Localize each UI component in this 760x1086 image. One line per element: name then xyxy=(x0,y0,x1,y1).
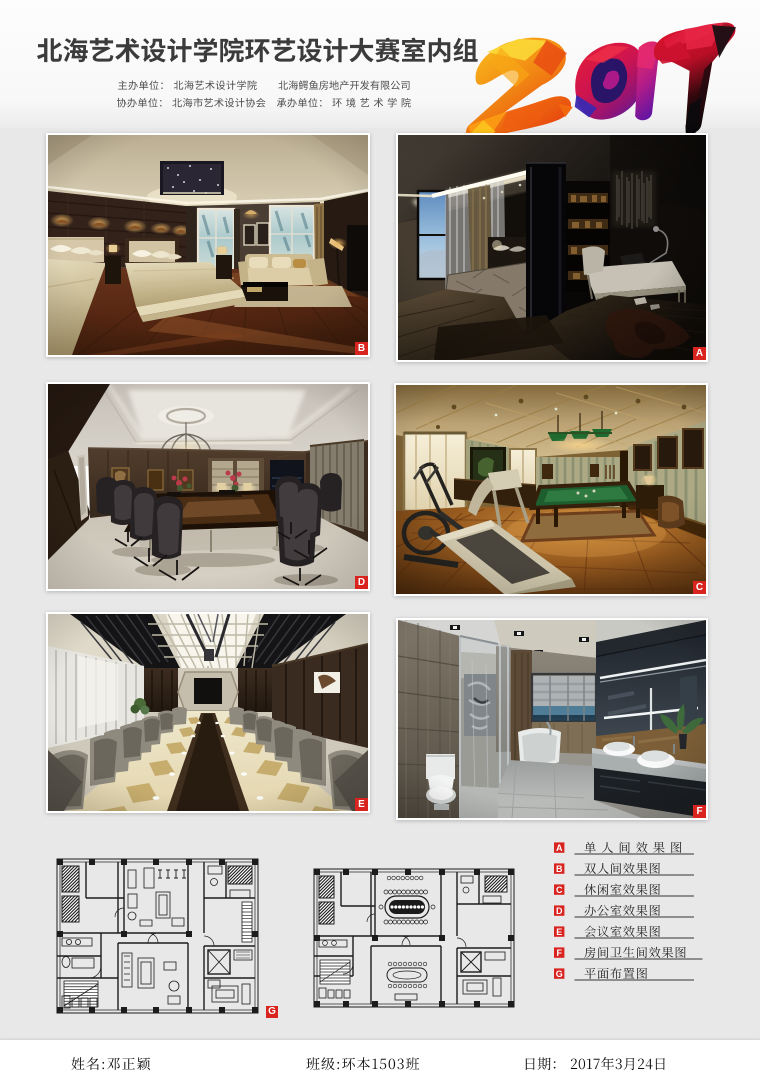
svg-text:G: G xyxy=(556,969,563,979)
svg-text:B: B xyxy=(556,864,563,874)
svg-text:C: C xyxy=(556,885,563,895)
svg-text:F: F xyxy=(556,948,562,958)
svg-text:E: E xyxy=(556,927,562,937)
svg-text:D: D xyxy=(556,906,563,916)
svg-text:A: A xyxy=(556,843,563,853)
